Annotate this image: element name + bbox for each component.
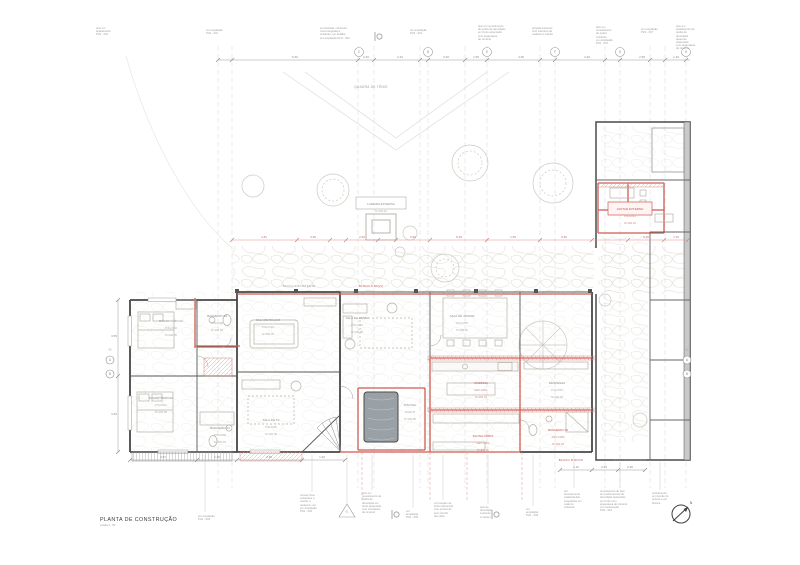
room-label-sauna-umida: SAUNA ÚMIDA REV-C002 N=100,00 [473,431,494,455]
dim-top: 2.43 [397,55,403,59]
note-top-6: piso em revestimento de pedra existente … [596,26,628,45]
section-marker-right-b: B [686,372,688,376]
dim-top: 4.36 [518,55,524,59]
note-top-1: ver ampliação PLN - 001 [206,29,238,35]
note-bottom-0: ver ampliação PLN - 003 [198,515,230,521]
note-bottom-7: ver levantamento cadastral das esquadria… [564,490,596,509]
note-top-2: em fachada: cobertura nova integrada à e… [320,27,352,40]
dim-red: 4.36 [310,235,316,239]
note-bottom-9: acabamento em demão de pintura a cal bra… [652,492,684,505]
dim-bottom: 3.97 [160,455,166,459]
section-marker-left-b: B [109,372,111,376]
room-label-banheiro-01: BANHEIRO 01 PIS-C009 N=100,03 [210,423,230,447]
dim-top: 1.16 [673,55,679,59]
note-bottom-6: ver ampliação PLN - 006 [526,508,558,518]
dim-top: 1.50 [473,55,479,59]
room-label-sala-de-tv: SALA DE TV PIS-C006 N=100,05 [262,415,279,439]
drawing-scale: escala 1 : 50 [100,524,115,527]
block-label-a-novo: BLOCO A NOVO [359,284,383,288]
north-arrow-icon [672,505,690,523]
dim-red: 1.15 [673,235,679,239]
room-label-despensa: DESPENSA PIS-C010 N=100,03 [549,378,565,402]
dim-right: 0.63 [601,465,607,469]
note-bottom-4: ver traçado na linha referencial com pon… [434,502,466,518]
note-bottom-2: piso em revestimento de pedra de demoliç… [362,492,394,514]
room-label-sala-de-bilhar: SALA DE BILHAR PIS-C003 N=100,05 [256,315,280,339]
section-marker-left-a: A [109,358,111,362]
pool [364,392,398,442]
room-label-cozinha: COZINHA REV-C001 N=100,03 [474,378,488,402]
room-label-sala-de-jantar: SALA DE JANTAR PIS-C005 N=100,05 [450,311,475,335]
room-label-sala-de-estar: SALA DE ESTAR PIS-C004 N=100,05 [345,313,368,337]
room-label-banheiro-02: BANHEIRO 02 PIS-C008 N=100,03 [207,311,227,335]
dim-red: 2.60 [359,235,365,239]
dim-bottom: 1.45 [214,455,220,459]
drawing-sheet: QUADRA DE TÊNIS DORMITÓRIO 02 PIS-C002 N… [0,0,800,565]
room-label-piscina: PISCINA N=99,75 N=100,05 [404,400,416,424]
note-top-5: pérgola existente com estrutura de madei… [532,27,564,37]
dim-left: 3.55 [111,334,117,338]
plan-linework [0,0,800,565]
note-bottom-5: piso de demolição existente a manter [480,506,512,519]
dim-red: 1.50 [510,235,516,239]
north-label: N [690,501,692,505]
dim-left: 3.60 [111,412,117,416]
note-top-8: piso em acabamento de pedra de demolição… [676,25,708,51]
outdoor-fireplace [366,214,396,240]
block-label-a-existente: BLOCO A EXISTENTE [283,284,316,288]
label-boxes [356,197,652,215]
dim-red: 5.40 [561,235,567,239]
room-label-banheiro-03: BANHEIRO 03 REV-C003 N=100,03 [548,425,568,449]
dim-top: 3.40 [443,55,449,59]
room-name: DORMITÓRIO 02 [159,320,183,324]
note-top-7: ver ampliação PLN - 007 [641,28,673,34]
drawing-title: PLANTA DE CONSTRUÇÃO [100,517,177,523]
grid-bubble-label: F [554,50,556,54]
dim-red: 8.29 [456,235,462,239]
room-label-jantar-externo: JANTAR EXTERNO PIS-C012 N=100,15 [617,204,644,228]
dim-top: 2.40 [363,55,369,59]
dim-right: 2.35 [627,465,633,469]
note-bottom-8: revestimento de piso em pedra arenito de… [600,490,642,512]
note-bottom-1: móveis fixos existentes a manter e resta… [300,494,332,513]
section-marker-right-a: A [686,358,688,362]
dim-right: 1.16 [573,465,579,469]
dim-red: 0.90 [410,235,416,239]
block-label-b-existente: BLOCO B EXISTENTE [613,458,646,462]
dim-red: 1.81 [261,235,267,239]
section-number-left: 02 [109,349,112,352]
dim-bottom: 2.48 [266,455,272,459]
grid-bubble-label: C [358,50,360,54]
note-top-4: piso em revestimento de pedra de demoliç… [478,25,510,41]
grid-bubble-label: D [427,50,429,54]
room-label-dormitorio-01: DORMITÓRIO 01 PIS-C001 N=100,05 [149,393,173,417]
note-top-0: piso em acabamento PLN - 001 [96,27,128,37]
grid-bubble-label: G [619,50,621,54]
dim-top: 2.90 [639,55,645,59]
dim-red: 2.35 [643,235,649,239]
section-number-right: 02 [686,349,689,352]
block-label-b-novo: BLOCO B NOVO [559,458,584,462]
room-label-lareira-externa: LAREIRA EXTERNA N=100,10 [367,199,395,217]
terrain-contour [126,56,232,248]
dim-bottom: 1.40 [319,455,325,459]
grid-bubble-label: E [486,50,488,54]
detail-marker-label: 01 [346,511,349,514]
tennis-court-label: QUADRA DE TÊNIS [354,85,388,89]
tennis-court-lines [283,72,509,150]
room-label-dormitorio-02: DORMITÓRIO 02 PIS-C002 N=100,05 [159,316,183,340]
note-top-3: ver ampliação PLN - 002 [410,29,442,35]
dim-top: 5.40 [292,55,298,59]
dim-top: 4.20 [584,55,590,59]
